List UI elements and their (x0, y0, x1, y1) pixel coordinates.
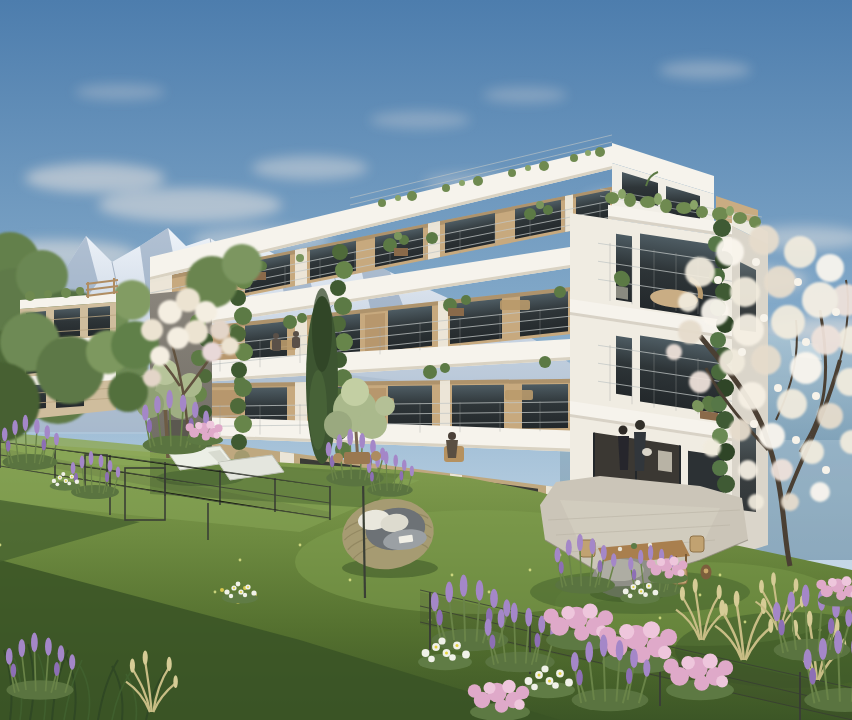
apartment-rendering (0, 0, 852, 720)
rendering-canvas (0, 0, 852, 720)
